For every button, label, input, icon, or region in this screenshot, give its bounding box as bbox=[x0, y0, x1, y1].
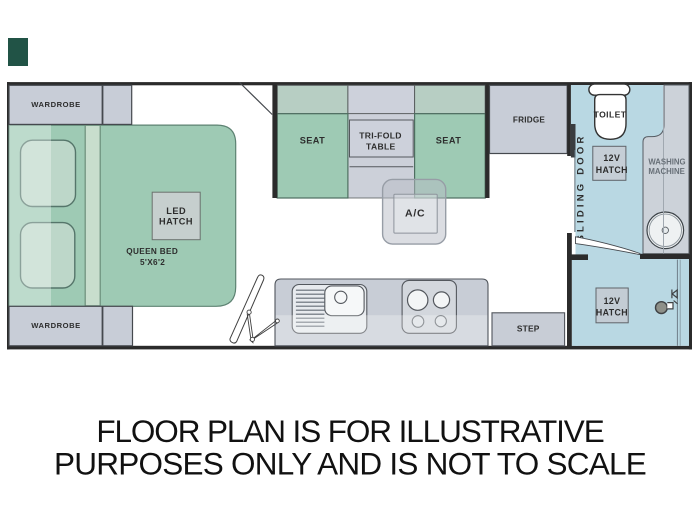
svg-text:WARDROBE: WARDROBE bbox=[31, 321, 81, 330]
svg-text:TRI-FOLD: TRI-FOLD bbox=[359, 130, 402, 140]
svg-text:WASHING: WASHING bbox=[648, 158, 685, 167]
svg-text:FLOOR PLAN IS FOR ILLUSTRATIVE: FLOOR PLAN IS FOR ILLUSTRATIVE bbox=[96, 413, 603, 449]
svg-text:SLIDING DOOR: SLIDING DOOR bbox=[575, 133, 586, 241]
svg-text:QUEEN BED: QUEEN BED bbox=[126, 247, 178, 256]
svg-text:HATCH: HATCH bbox=[159, 217, 193, 227]
svg-text:HATCH: HATCH bbox=[596, 307, 628, 317]
svg-text:LED: LED bbox=[166, 206, 186, 216]
svg-text:PURPOSES ONLY AND IS NOT TO SC: PURPOSES ONLY AND IS NOT TO SCALE bbox=[54, 446, 646, 482]
svg-text:MACHINE: MACHINE bbox=[648, 167, 684, 176]
svg-text:HATCH: HATCH bbox=[596, 165, 628, 175]
svg-text:12V: 12V bbox=[604, 296, 621, 306]
svg-text:A/C: A/C bbox=[405, 208, 425, 220]
svg-text:FRIDGE: FRIDGE bbox=[513, 116, 545, 125]
svg-text:WARDROBE: WARDROBE bbox=[31, 100, 81, 109]
svg-text:5'X6'2: 5'X6'2 bbox=[140, 258, 165, 267]
svg-text:STEP: STEP bbox=[517, 324, 540, 334]
svg-text:SEAT: SEAT bbox=[436, 135, 461, 145]
svg-text:TABLE: TABLE bbox=[366, 142, 396, 152]
svg-text:12V: 12V bbox=[603, 153, 620, 163]
svg-text:SEAT: SEAT bbox=[300, 135, 325, 145]
svg-text:TOILET: TOILET bbox=[594, 109, 627, 119]
